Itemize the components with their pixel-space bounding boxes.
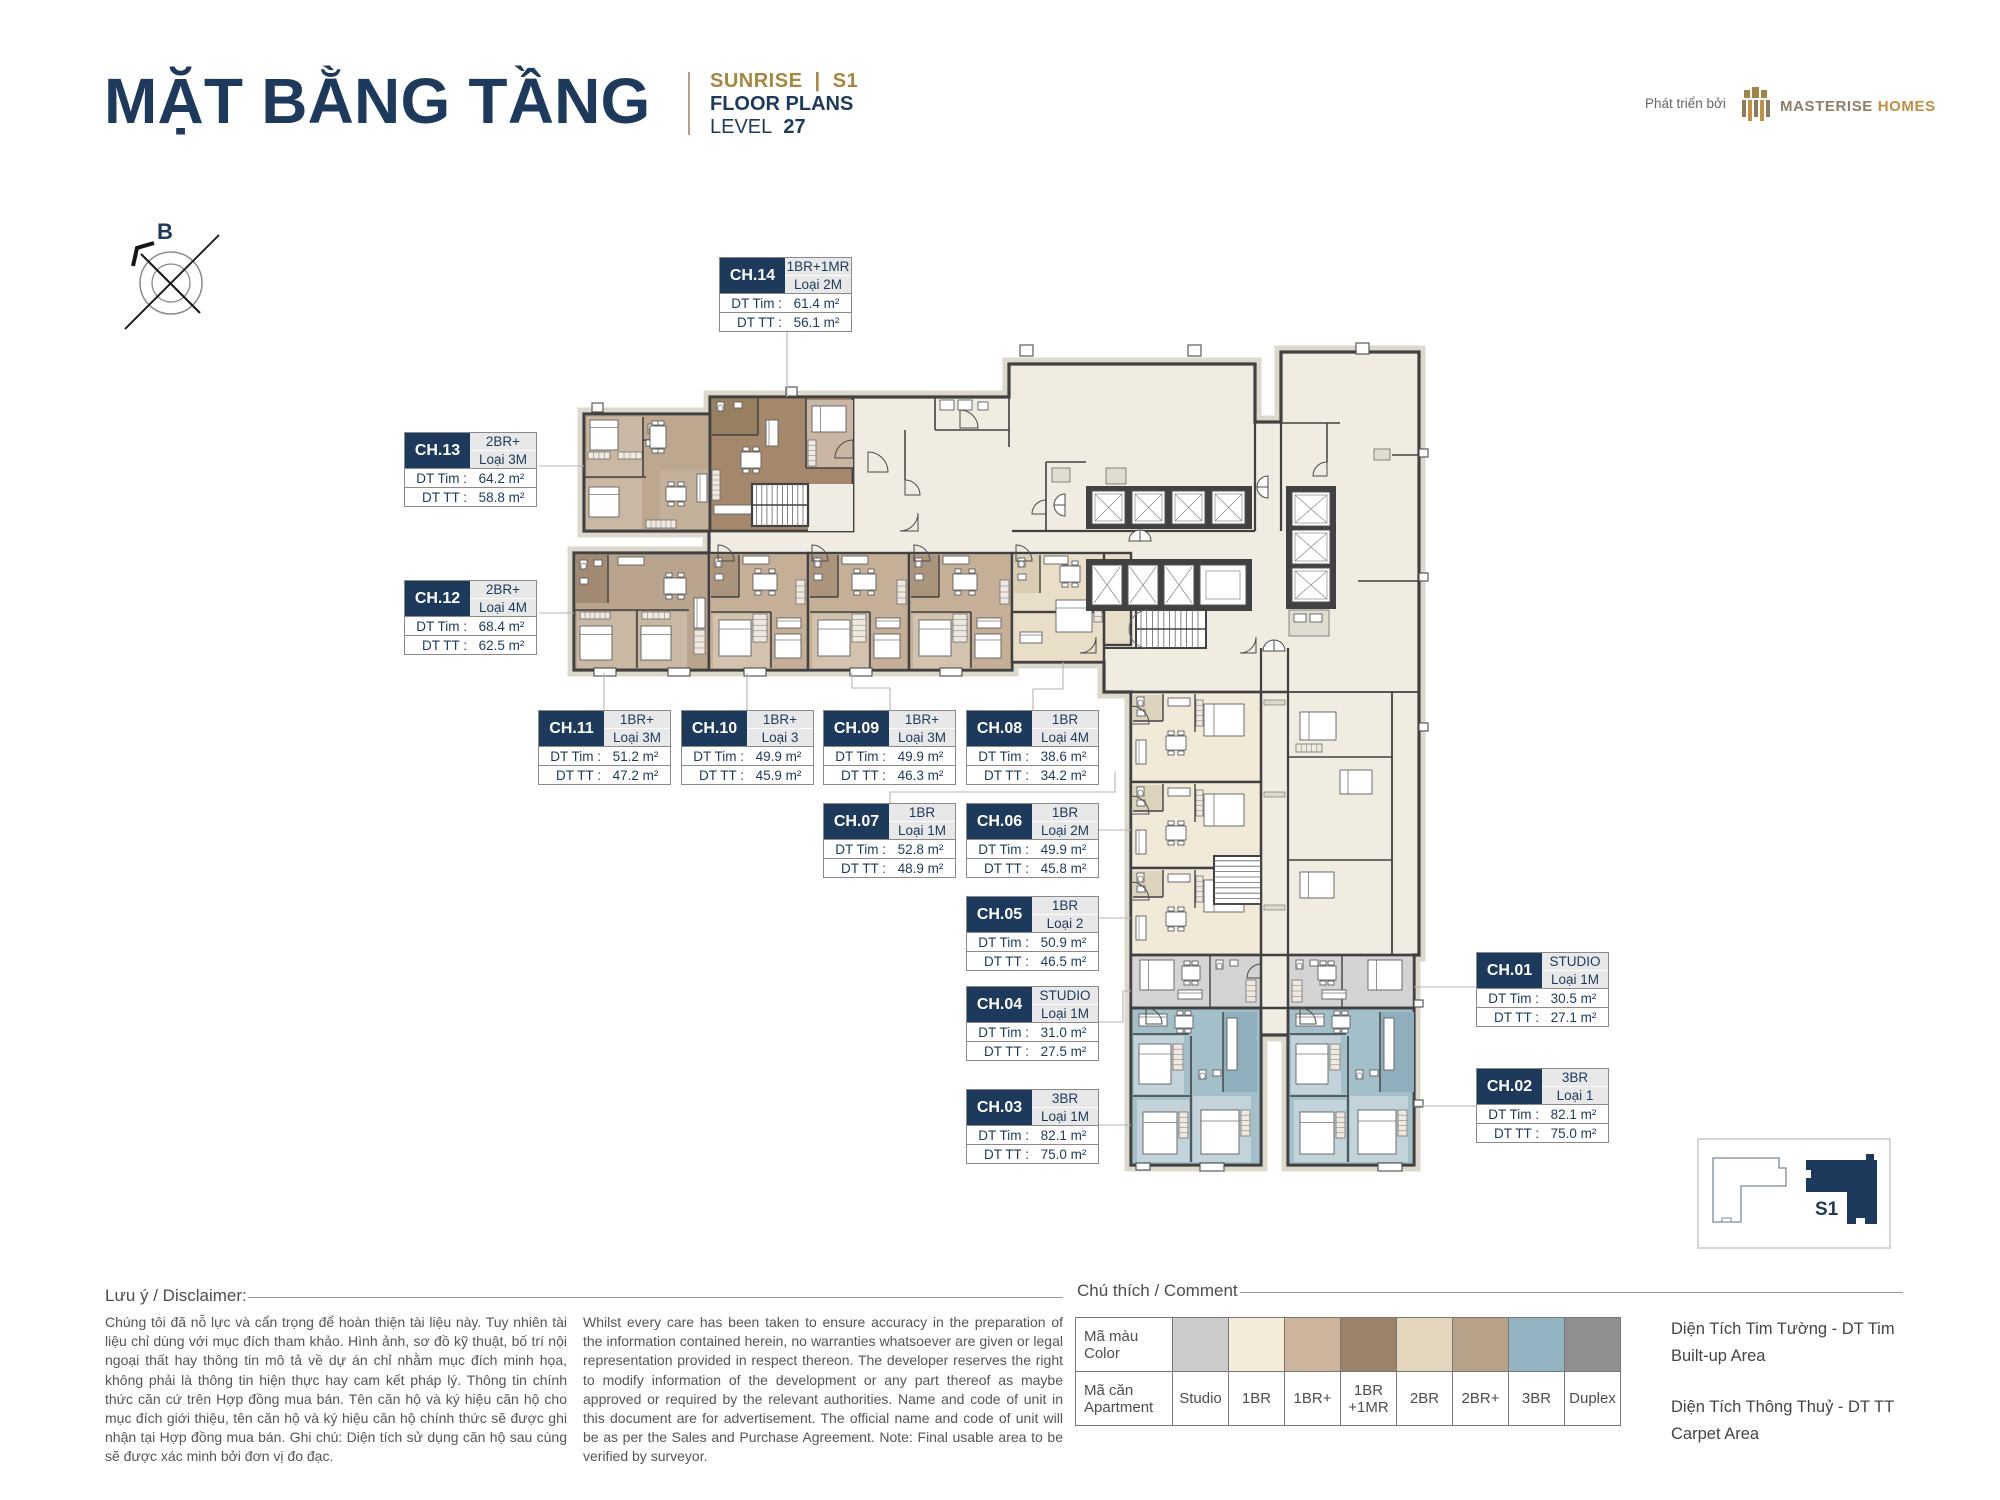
svg-text:S1: S1 xyxy=(1815,1199,1839,1220)
svg-text:B: B xyxy=(157,219,173,244)
